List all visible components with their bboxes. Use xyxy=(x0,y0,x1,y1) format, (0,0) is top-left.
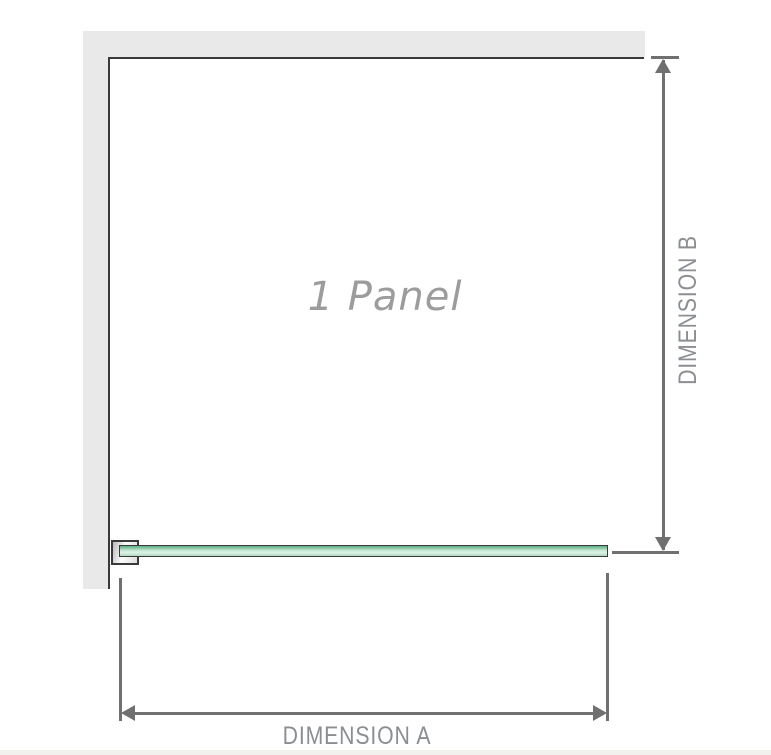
dimension-b-bottom-tick xyxy=(612,551,679,554)
arrow-down-icon xyxy=(655,537,671,551)
arrow-left-icon xyxy=(121,705,135,721)
dimension-b-line xyxy=(662,60,665,550)
wall-top xyxy=(83,31,645,57)
wall-left-inner-edge xyxy=(108,57,110,589)
arrow-up-icon xyxy=(655,59,671,73)
dimension-a-left-extension xyxy=(119,578,122,721)
dimension-b-label-wrap: DIMENSION B xyxy=(674,225,702,395)
dimension-a-line xyxy=(128,712,602,715)
glass-panel xyxy=(119,545,608,557)
wall-left xyxy=(83,31,108,589)
arrow-right-icon xyxy=(593,705,607,721)
panel-count-label: 1 Panel xyxy=(308,274,463,320)
dimension-a-right-extension xyxy=(606,573,609,721)
dimension-b-label: DIMENSION B xyxy=(674,235,703,385)
panel-dimension-diagram: 1 Panel DIMENSION B DIMENSION A xyxy=(0,0,771,755)
bottom-strip xyxy=(0,750,771,755)
wall-top-inner-edge xyxy=(108,57,644,59)
dimension-a-label: DIMENSION A xyxy=(283,722,432,751)
